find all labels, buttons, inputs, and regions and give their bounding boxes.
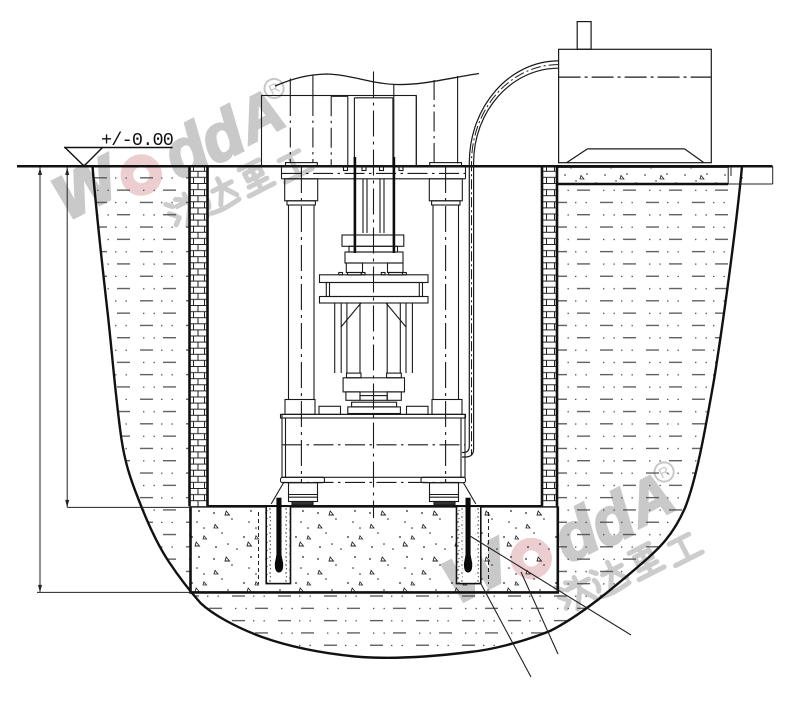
svg-text:+/-0.00: +/-0.00 [101, 130, 173, 151]
